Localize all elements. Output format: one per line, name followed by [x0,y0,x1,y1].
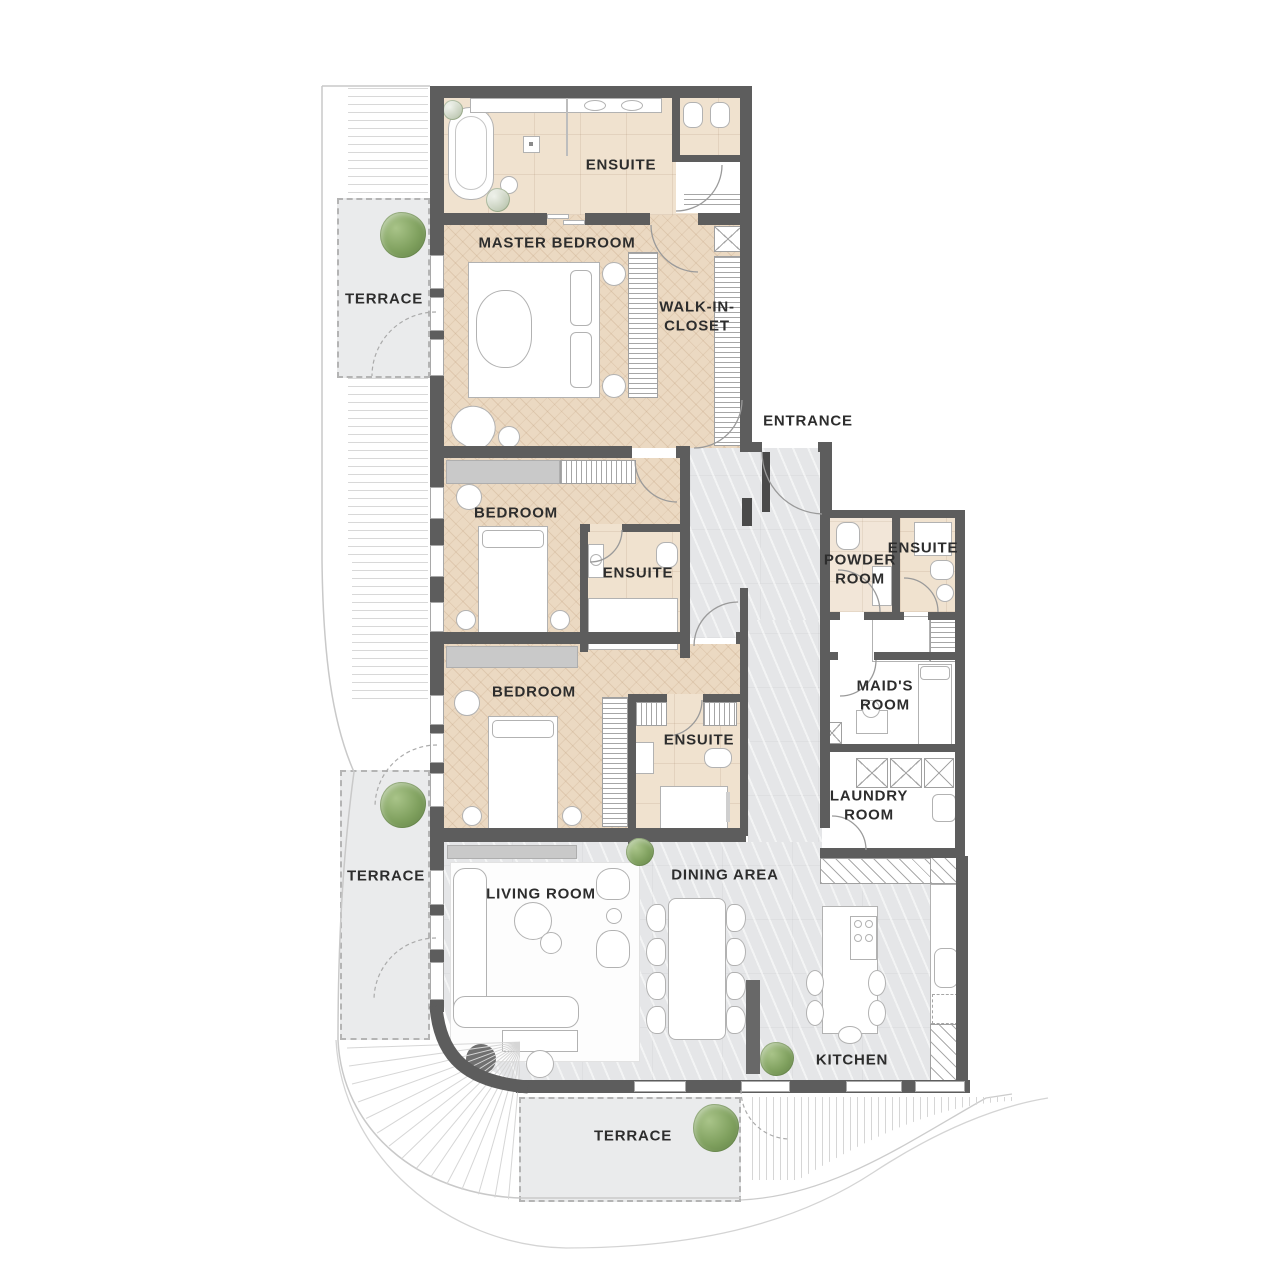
closet-bedroom2 [446,460,560,484]
washer-2 [890,758,922,788]
wall-ensuite2-north-2 [622,524,680,532]
window-bedroom2-2 [430,545,444,577]
toilet-master [683,102,703,128]
wall-ensuite4-north-1 [628,694,667,702]
closet-ensuite4-right [703,702,737,726]
entrance-door-leaf [762,452,770,512]
window-master-1 [430,255,444,289]
sofa-chaise [453,996,579,1028]
pillow-bedroom2 [482,530,544,548]
armchair-living-2 [596,930,630,968]
window-south-3 [915,1081,965,1092]
basin-ensuite3 [936,584,954,602]
shower-ensuite3 [914,522,952,556]
wall-ensuite2-west [580,524,588,652]
stool-4 [868,1000,886,1026]
wardrobe-bedroom3 [602,697,628,827]
wall-corridor-west [740,588,748,836]
chair-maids [862,700,880,718]
wall-powder-south-3 [928,612,965,620]
dining-chair-l1 [646,904,666,932]
wall-top [430,86,752,98]
basin-1 [584,100,606,111]
pillow-master-2 [570,332,592,388]
dishwasher [932,994,958,1024]
dining-chair-r1 [726,904,746,932]
shaft-walkin [714,226,742,252]
burner-1 [854,920,862,928]
wall-wc-divider-v [672,98,680,160]
wall-maid-south [820,744,965,752]
wall-powder-west [820,518,830,620]
pillow-maids [920,666,950,680]
armchair-living-1 [596,868,630,900]
nightstand-bedroom2-2 [550,610,570,630]
wall-living-north [430,828,746,842]
wardrobe-bedroom2 [560,460,636,484]
wall-ensuite-master-south-3 [698,213,752,225]
toilet-ensuite3 [930,560,954,580]
floor-entrance-hall [690,448,822,638]
vanity-ensuite4 [634,742,654,774]
dining-chair-l2 [646,938,666,966]
window-bedroom2-1 [430,487,444,519]
dining-chair-l3 [646,972,666,1000]
dining-chair-r3 [726,972,746,1000]
wall-powder-divider [892,518,900,612]
wall-wc-divider-h [672,155,752,162]
window-living-2 [430,915,444,950]
wall-vestibule-east [820,442,832,518]
terrace-door-living [430,962,444,1000]
stool-1 [806,970,824,996]
sliding-door-leaf-2 [563,220,585,225]
vanity-powder [872,566,892,606]
shower-ensuite4 [660,786,728,832]
wall-laundry-south [820,848,965,858]
window-bedroom3-2 [430,733,444,763]
window-living-1 [430,870,444,905]
wall-maid-north-2 [874,652,955,660]
chair-bedroom3 [454,690,480,716]
nightstand-bedroom3-1 [462,806,482,826]
bathtub-inner [455,116,487,190]
toilet-ensuite2 [656,542,678,568]
washer-1 [856,758,888,788]
wall-maid-north-1 [830,652,838,660]
dining-table [668,898,726,1040]
wardrobe-walkin-right [714,256,742,446]
terrace-door-bedroom3 [430,773,444,807]
coffee-table-2 [540,932,562,954]
wall-kitchen-east [956,856,968,1092]
media-console [447,845,577,859]
wall-powder-east-outer [955,510,965,620]
terrace-door-south [741,1081,790,1092]
wall-ensuite4-north-2 [703,694,746,702]
washer-3 [924,758,954,788]
bench-master [476,290,532,368]
nightstand-bedroom2-1 [456,610,476,630]
floor-lamp [466,1044,496,1074]
shelf-wc [684,194,746,208]
glass-partition [566,98,568,156]
wall-powder-south-2 [864,612,904,620]
dining-chair-l4 [646,1006,666,1034]
window-master-2 [430,297,444,331]
bidet-master [710,102,730,128]
wall-corridor-east-1 [820,620,830,828]
burner-4 [865,934,873,942]
wall-hall-west [680,446,690,658]
kitchen-counter-north [820,858,940,884]
side-table-living [606,908,622,924]
round-table-living [526,1050,554,1078]
deck-stripes-mid-left [348,378,428,562]
stool-5 [838,1026,862,1044]
toilet-powder [836,522,860,550]
floor-plan: ENSUITE MASTER BEDROOM TERRACE WALK-IN- … [0,0,1280,1280]
basin-2 [621,100,643,111]
tall-cabinet-dining [746,980,760,1074]
sink-laundry [932,794,956,822]
deck-stripes-top-left [348,88,428,198]
wall-east-master [740,86,752,452]
burner-2 [865,920,873,928]
dining-chair-r2 [726,938,746,966]
wall-ensuite4-west [628,694,636,844]
window-bedroom3-1 [430,695,444,725]
wall-powder-south-1 [820,612,840,620]
basin-ensuite2 [590,554,602,566]
window-south-1 [634,1081,686,1092]
side-table-master [498,426,520,448]
pillow-bedroom3 [492,720,554,738]
shower-drain-dot [529,142,533,146]
stool-2 [806,1000,824,1026]
wall-east-maid [955,620,965,856]
terrace-door-master [430,339,444,376]
nightstand-bedroom3-2 [562,806,582,826]
nightstand-master-1 [602,262,626,286]
entrance-door-leaf-2 [742,498,752,526]
stool-3 [868,970,886,996]
dining-chair-r4 [726,1006,746,1034]
wall-ensuite2-north-1 [580,524,590,532]
floor-corridor [748,620,822,850]
sliding-door-leaf-1 [547,214,569,219]
window-south-2 [846,1081,902,1092]
wall-vestibule-north-1 [752,442,762,452]
nightstand-master-2 [602,374,626,398]
wall-bedroom2-south-1 [430,632,690,644]
wall-powder-north [820,510,965,518]
closet-bedroom3 [446,646,578,668]
room-label-entrance: ENTRANCE [763,413,853,432]
deck-stripes-curve-left [352,562,428,702]
wall-ensuite-master-south-2 [585,213,650,225]
wall-ensuite-master-south-1 [430,213,547,225]
window-bedroom2-3 [430,602,444,632]
pillow-master-1 [570,270,592,326]
bench-living [502,1030,578,1052]
chair-bedroom2 [456,484,482,510]
kitchen-sink [934,948,958,988]
burner-3 [854,934,862,942]
towel-rail-ensuite4 [726,792,730,822]
wardrobe-walkin-left [628,252,658,398]
wall-master-south-1 [430,446,632,458]
toilet-ensuite4 [704,748,732,768]
